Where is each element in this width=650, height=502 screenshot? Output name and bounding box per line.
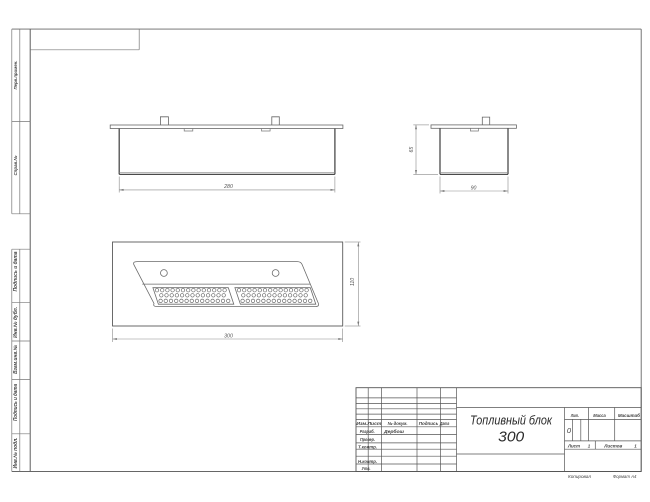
svg-text:Утв.: Утв. [362,466,371,471]
svg-text:Провер.: Провер. [360,437,375,442]
svg-text:Подпись и дата: Подпись и дата [13,251,19,291]
svg-text:Дата: Дата [439,421,450,426]
svg-text:Дербош: Дербош [383,429,404,434]
svg-text:Н.контр.: Н.контр. [358,459,377,464]
svg-text:Взам.инв.№: Взам.инв.№ [13,345,19,374]
svg-text:90: 90 [471,185,477,191]
svg-text:Подпись: Подпись [419,421,439,426]
svg-text:Масса: Масса [593,413,606,418]
svg-text:Изм.Лист: Изм.Лист [356,421,381,426]
svg-text:1: 1 [588,443,591,448]
svg-text:110: 110 [350,278,356,286]
svg-text:0: 0 [567,426,572,435]
svg-text:Лит.: Лит. [570,413,579,418]
svg-text:300: 300 [224,333,233,339]
svg-text:280: 280 [223,184,233,190]
svg-text:Масштаб: Масштаб [618,413,640,418]
svg-text:Инв.№ дубл.: Инв.№ дубл. [12,307,19,338]
svg-text:65: 65 [409,147,415,153]
svg-text:Лист: Лист [567,443,580,448]
svg-text:№ докум.: № докум. [388,421,408,426]
svg-text:Т.контр.: Т.контр. [358,444,377,449]
svg-text:Подпись и дата: Подпись и дата [13,384,19,421]
svg-text:Топливный блок: Топливный блок [470,413,553,428]
svg-text:Разраб.: Разраб. [360,429,375,434]
svg-text:300: 300 [498,428,525,445]
svg-text:1: 1 [634,443,637,448]
svg-text:Инв.№ подл.: Инв.№ подл. [13,438,19,469]
svg-text:Справ.№: Справ.№ [13,155,18,175]
svg-text:Перв.примен.: Перв.примен. [13,61,18,90]
svg-text:Копировал: Копировал [568,474,592,479]
svg-text:Формат А4: Формат А4 [613,474,637,479]
svg-text:Листов: Листов [603,443,622,448]
